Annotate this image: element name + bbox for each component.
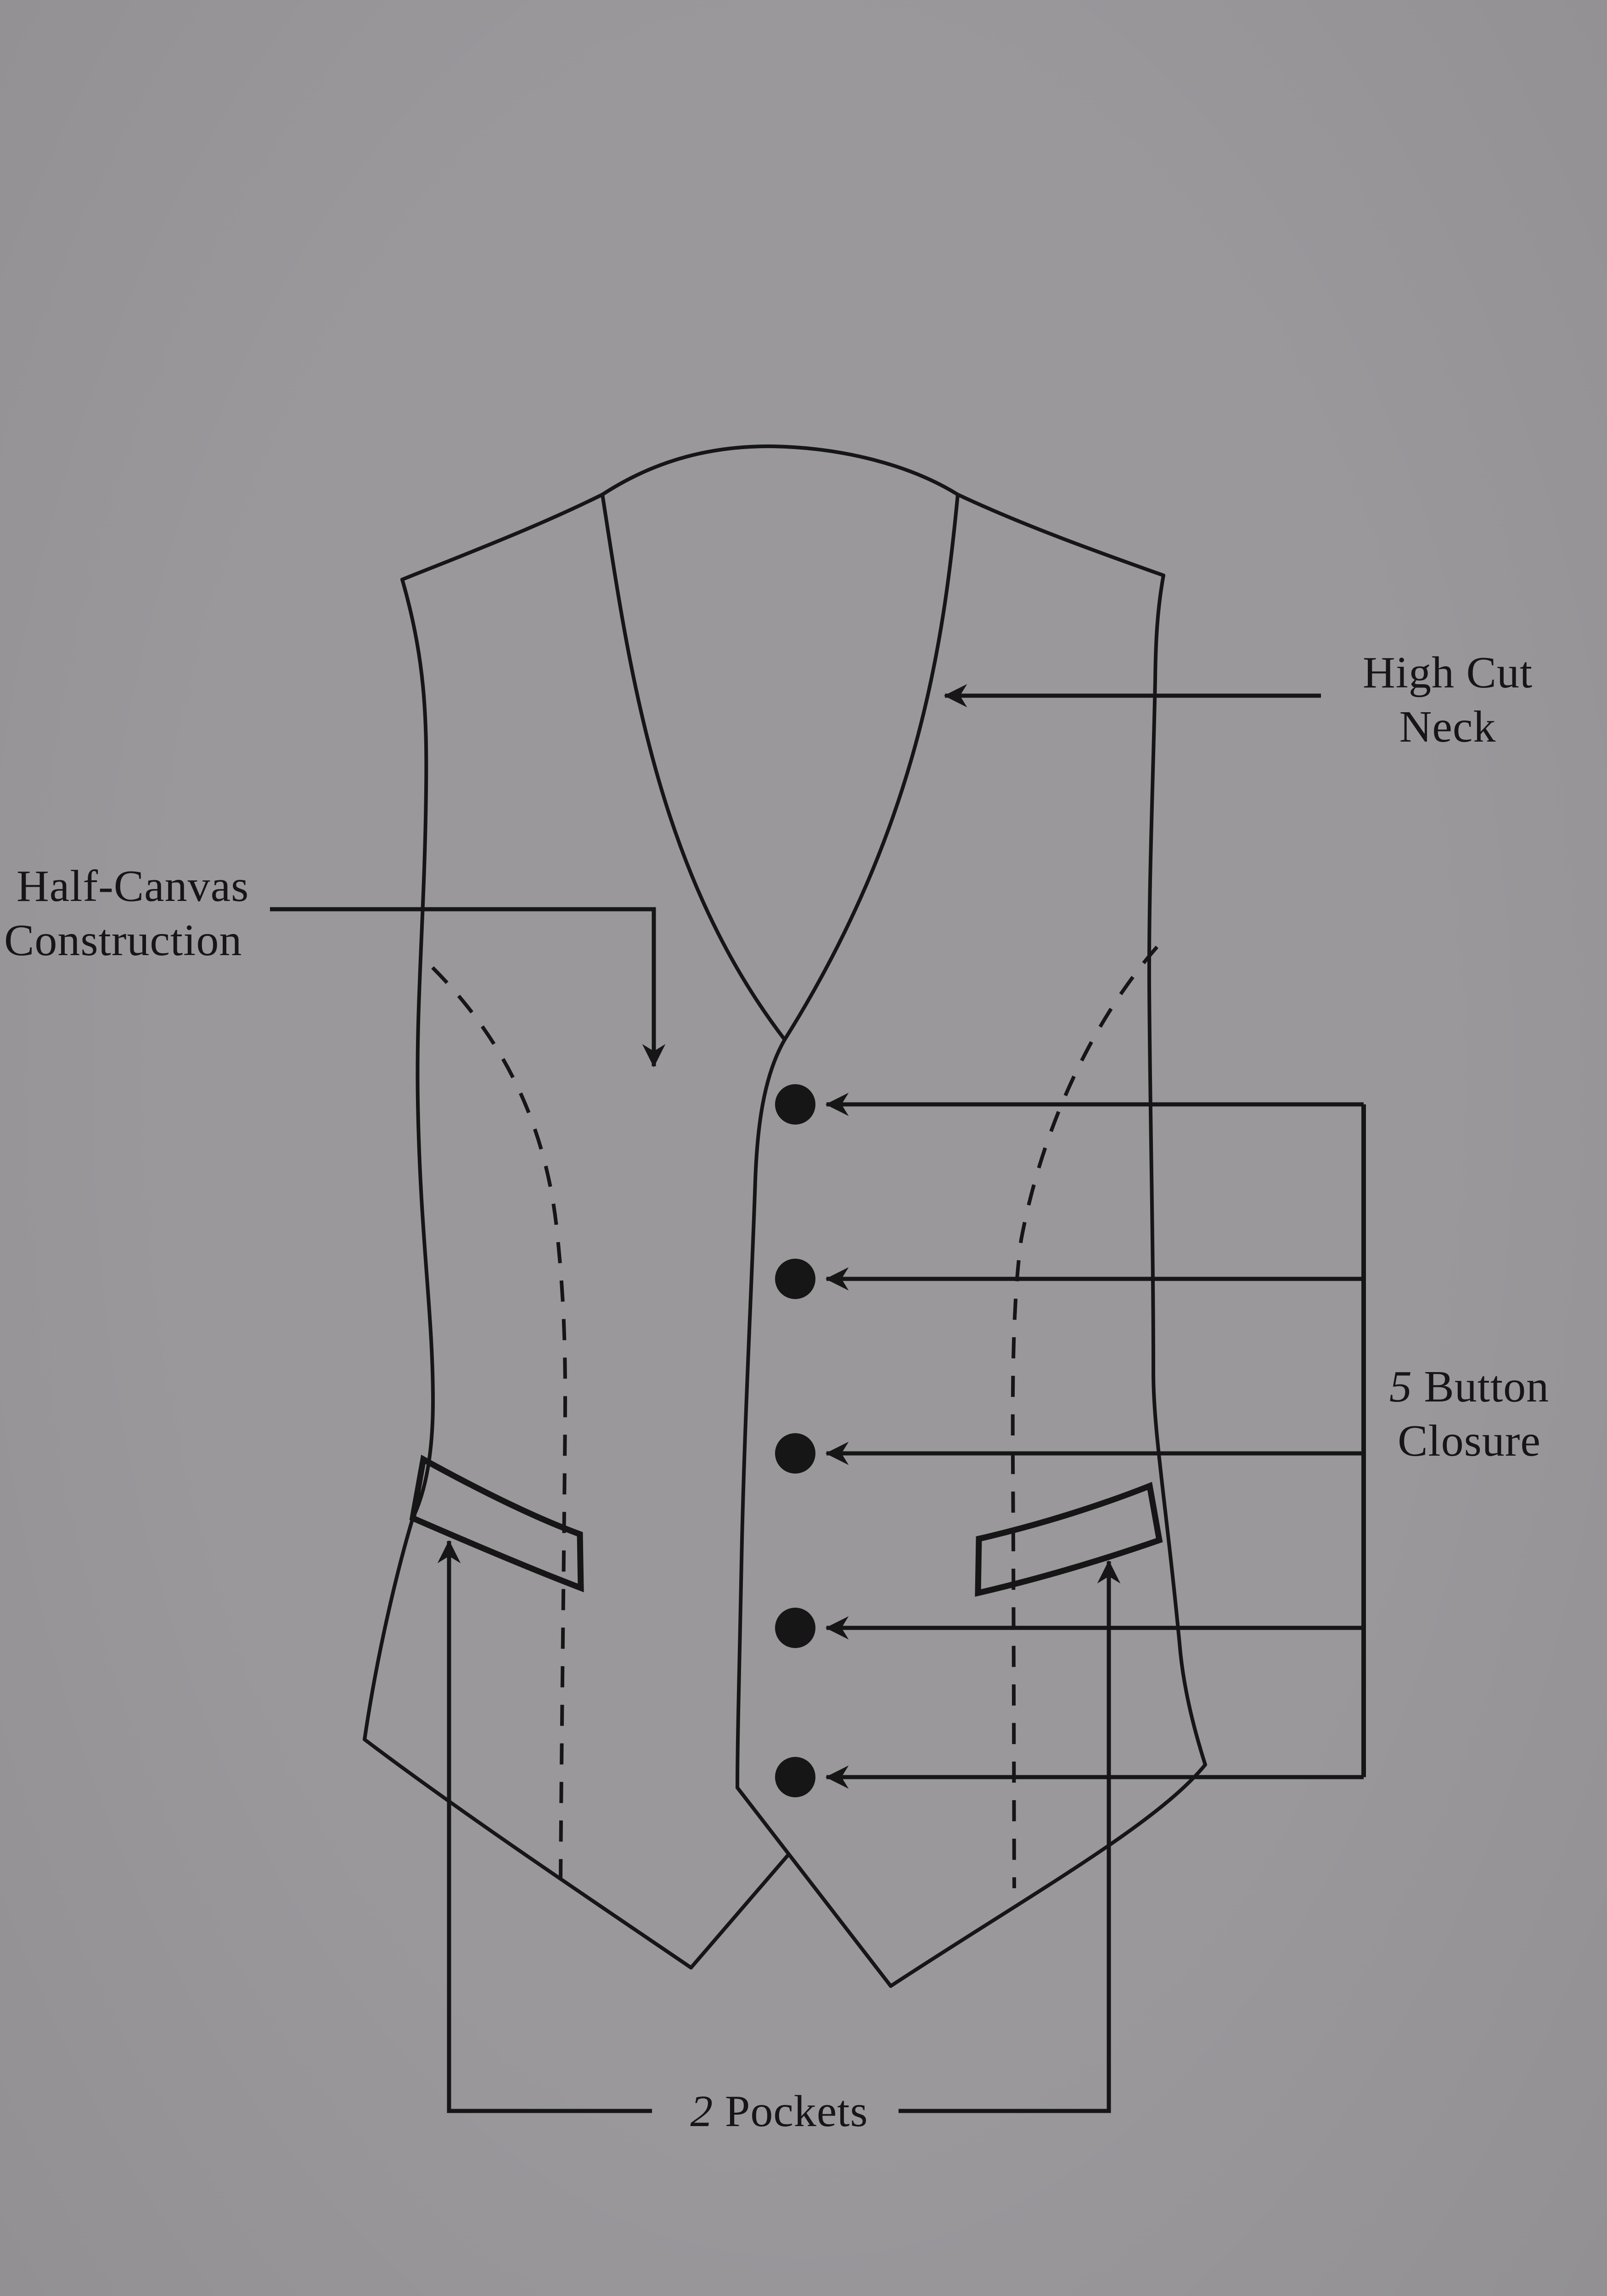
button-group bbox=[775, 1084, 815, 1797]
vest-diagram-canvas: High Cut Neck Half-Canvas Construction 5… bbox=[0, 0, 1607, 2296]
right-side-edge bbox=[1149, 575, 1205, 1765]
right-princess-seam-dashed bbox=[1013, 947, 1157, 1888]
center-front-edge bbox=[737, 1040, 785, 1788]
left-lapel-line bbox=[602, 495, 785, 1040]
right-shoulder-seam bbox=[958, 495, 1163, 575]
high-cut-neck-label-line1: High Cut bbox=[1363, 648, 1533, 698]
right-pocket-arrow bbox=[899, 1561, 1109, 2111]
right-front-hem bbox=[891, 1765, 1205, 1986]
two-pockets-label: 2 Pockets bbox=[690, 2087, 868, 2136]
half-canvas-label-line1: Half-Canvas bbox=[17, 861, 249, 911]
diagram-page: High Cut Neck Half-Canvas Construction 5… bbox=[0, 0, 1607, 2296]
half-canvas-label-line2: Construction bbox=[4, 916, 242, 965]
vest-outline-group bbox=[365, 446, 1205, 1986]
right-lapel-line bbox=[785, 495, 958, 1040]
left-shoulder-seam bbox=[402, 495, 602, 580]
half-canvas-arrow bbox=[270, 909, 654, 1066]
left-hem-return bbox=[691, 1855, 788, 1968]
button-closure-label-line1: 5 Button bbox=[1389, 1362, 1549, 1412]
left-pocket-welt bbox=[413, 1459, 581, 1588]
button-3 bbox=[775, 1433, 815, 1474]
neckline-top-curve bbox=[602, 446, 958, 495]
right-pocket-welt bbox=[978, 1486, 1159, 1593]
left-front-hem bbox=[365, 1739, 691, 1968]
left-princess-seam-dashed bbox=[433, 968, 565, 1878]
high-cut-neck-label-line2: Neck bbox=[1399, 702, 1496, 752]
left-pocket-arrow bbox=[449, 1541, 652, 2111]
button-2 bbox=[775, 1259, 815, 1299]
pocket-group bbox=[413, 1459, 1159, 1593]
button-1 bbox=[775, 1084, 815, 1125]
button-5 bbox=[775, 1757, 815, 1797]
button-closure-label-line2: Closure bbox=[1398, 1416, 1541, 1466]
left-side-edge bbox=[365, 580, 433, 1739]
label-group: High Cut Neck Half-Canvas Construction 5… bbox=[4, 648, 1549, 2136]
button-4 bbox=[775, 1608, 815, 1648]
